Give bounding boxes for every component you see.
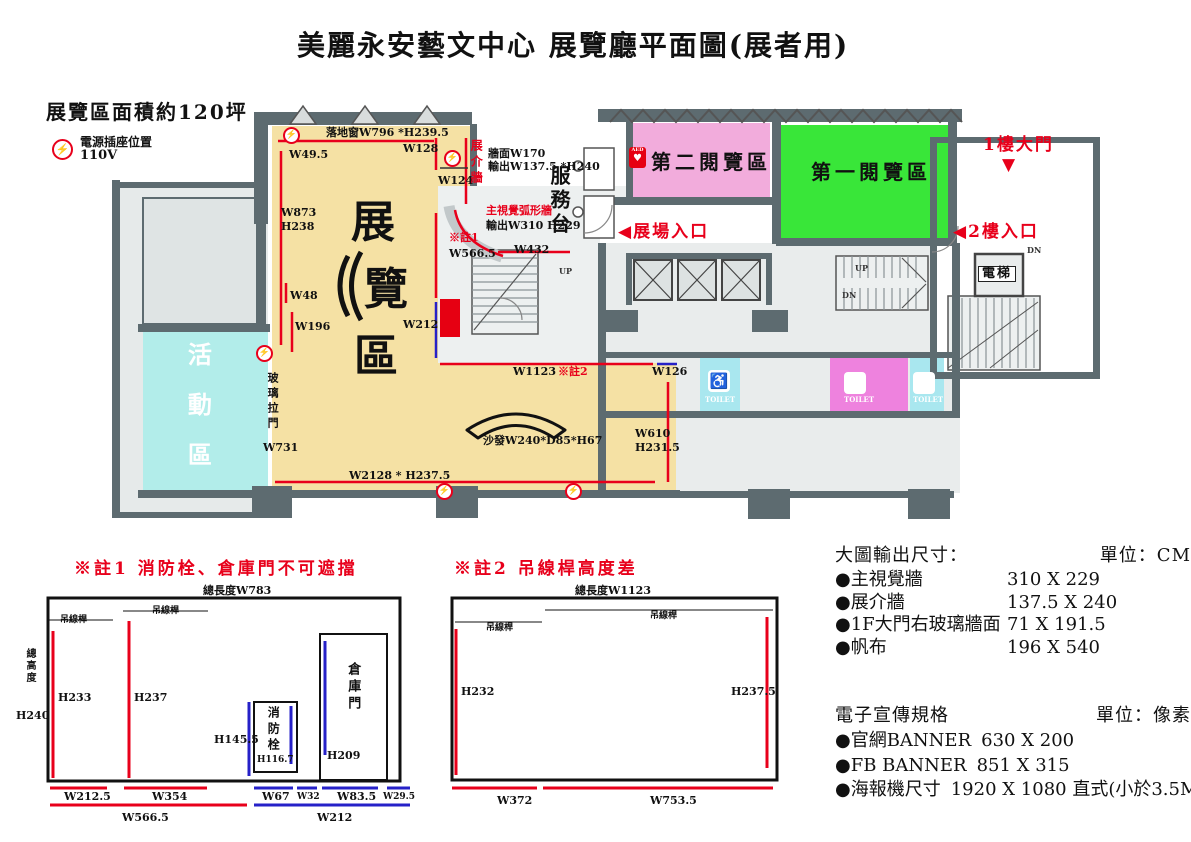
exhibition-char-1: 展 [351,199,395,247]
note2-title: ※註2 吊線桿高度差 [454,560,638,579]
power-outlet-icon-3: ⚡ [256,345,273,362]
men-toilet-icon [913,372,935,394]
digital-spec-item: ●官網BANNER630 X 200 [835,729,1191,754]
exhibition-char-2: 覽 [364,266,408,314]
h231-5: H231.5 [635,442,680,454]
digital-spec-item-size: 851 X 315 [977,754,1070,779]
note1-ref: ※註1 [449,232,479,244]
note1-bar-label-1: 吊線桿 [60,616,87,626]
output-spec-item-size: 137.5 X 240 [1007,592,1117,615]
activity-room: 活動區 [184,342,210,492]
w566-5: W566.5 [449,248,496,260]
digital-spec-block: 電子宣傳規格 單位：像素 ●官網BANNER630 X 200●FB BANNE… [835,703,1191,803]
output-spec-item-name: ●帆布 [835,637,1007,660]
main-visual-wall: 主視覺弧形牆 [486,205,552,217]
exhibit-intro-wall: 展介牆 [469,139,482,187]
wall-output: 輸出W137.5 *H240 [488,161,600,173]
digital-spec-item-name: ●海報機尺寸 [835,778,941,803]
note1-h240: H240 [16,710,49,722]
note1-w566-5: W566.5 [122,812,169,824]
note1-title: ※註1 消防栓、倉庫門不可遮擋 [74,560,358,579]
power-outlet-icon-1: ⚡ [283,127,300,144]
page-title: 美麗永安藝文中心 展覽廳平面圖(展者用) [297,24,849,64]
w48: W48 [290,290,318,302]
aed-icon: AED ♥ [629,147,646,168]
note1-h145-5: H145.5 [214,734,259,746]
power-outlet-icon-4: ⚡ [436,483,453,500]
power-outlet-icon-5: ⚡ [565,483,582,500]
power-outlet-icon: ⚡ [52,139,73,160]
digital-spec-item: ●FB BANNER851 X 315 [835,754,1191,779]
toilet-women-text: TOILET [844,396,874,404]
entrance-1f: 1樓大門 [983,136,1054,155]
digital-spec-item: ●海報機尺寸1920 X 1080 直式(小於3.5MB) [835,778,1191,803]
exhibition-char-3: 區 [354,333,398,381]
toilet-accessible-text: TOILET [705,396,735,404]
wall-w170: 牆面W170 [488,148,545,160]
floor-window-measure: 落地窗W796 *H239.5 [326,127,449,139]
power-voltage: 110V [80,148,117,163]
service-counter: 服務台 [548,165,570,237]
room-reading-1 [780,125,950,243]
room-toilet-women [830,358,908,417]
w873: W873 [281,207,316,219]
output-spec-item-size: 196 X 540 [1007,637,1100,660]
output-spec-item-name: ●主視覺牆 [835,569,1007,592]
reading-room-1: 第一閱覽區 [811,161,931,183]
w1123: W1123 [513,366,556,378]
w731: W731 [263,442,298,454]
digital-spec-item-size: 630 X 200 [981,729,1074,754]
digital-spec-title: 電子宣傳規格 [835,703,949,729]
output-spec-item: ●主視覺牆310 X 229 [835,569,1191,592]
output-spec-unit: 單位：CM [1100,543,1191,569]
note1-w67: W67 [262,791,290,803]
dn-1: DN [842,291,856,300]
sofa-size: 沙發W240*D85*H67 [483,435,602,447]
fire-hydrant-box [440,299,460,337]
output-spec-item-size: 71 X 191.5 [1007,614,1106,637]
floor-plan-page: 美麗永安藝文中心 展覽廳平面圖(展者用) 展覽區面積約120坪 ⚡ 電源插座位置… [0,0,1191,842]
note2-w753-5: W753.5 [650,795,697,807]
output-spec-item-size: 310 X 229 [1007,569,1100,592]
accessible-toilet-icon: ♿ [708,370,730,392]
note1-h116-7: H116.7 [257,756,294,766]
output-spec-item: ●帆布196 X 540 [835,637,1191,660]
note2-total-length: 總長度W1123 [575,585,651,597]
note1-w354: W354 [152,791,187,803]
note2-w372: W372 [497,795,532,807]
power-outlet-icon-2: ⚡ [444,150,461,167]
output-spec-item: ●展介牆137.5 X 240 [835,592,1191,615]
note1-h237: H237 [134,692,167,704]
digital-spec-unit: 單位：像素 [1096,703,1191,729]
entrance-1f-arrow: ▼ [1002,156,1017,175]
note2-bar-label-2: 吊線桿 [650,612,677,622]
w610: W610 [635,428,670,440]
women-toilet-icon [844,372,866,394]
note1-w212: W212 [317,812,352,824]
note1-total-length: 總長度W783 [203,585,271,597]
note2-h237-5: H237.5 [731,686,776,698]
output-spec-item-name: ●1F大門右玻璃牆面 [835,614,1007,637]
up-2: UP [855,264,868,273]
note1-bar-label-2: 吊線桿 [152,607,179,617]
output-spec-block: 大圖輸出尺寸： 單位：CM ●主視覺牆310 X 229●展介牆137.5 X … [835,543,1191,659]
note1-hydrant: 消防栓 [266,706,279,754]
note2-bar-label-1: 吊線桿 [486,624,513,634]
note1-w212-5: W212.5 [64,791,111,803]
output-spec-item-name: ●展介牆 [835,592,1007,615]
note1-h233: H233 [58,692,91,704]
w432: W432 [514,244,549,256]
dn-2: DN [1027,246,1041,255]
w126: W126 [652,366,687,378]
reading-room-2: 第二閱覽區 [651,151,771,173]
note1-total-height: 總高度 [24,648,35,684]
w196: W196 [295,321,330,333]
note1-warehouse: 倉庫門 [345,662,359,713]
note1-w83-5: W83.5 [337,791,376,803]
note1-w32: W32 [297,793,320,803]
h238: H238 [281,221,314,233]
digital-spec-item-name: ●官網BANNER [835,729,971,754]
w49-5: W49.5 [289,149,328,161]
digital-spec-item-size: 1920 X 1080 直式(小於3.5MB) [951,778,1191,803]
digital-spec-item-name: ●FB BANNER [835,754,967,779]
toilet-men-text: TOILET [913,396,943,404]
entrance-2f: ◀2樓入口 [953,223,1039,242]
glass-door: 玻璃拉門 [266,372,278,432]
area-note: 展覽區面積約120坪 [46,96,248,125]
note2-h232: H232 [461,686,494,698]
output-spec-item: ●1F大門右玻璃牆面71 X 191.5 [835,614,1191,637]
elevator-room: 電梯 [978,266,1016,282]
note1-h209: H209 [327,750,360,762]
note2-ref: ※註2 [558,366,588,378]
hall-entrance: ◀展場入口 [618,223,709,242]
output-spec-title: 大圖輸出尺寸： [835,543,968,569]
w128: W128 [403,143,438,155]
up-1: UP [559,267,572,276]
w2128: W2128 * H237.5 [349,470,450,482]
w212: W212 [403,319,438,331]
note1-w29-5: W29.5 [383,793,415,803]
